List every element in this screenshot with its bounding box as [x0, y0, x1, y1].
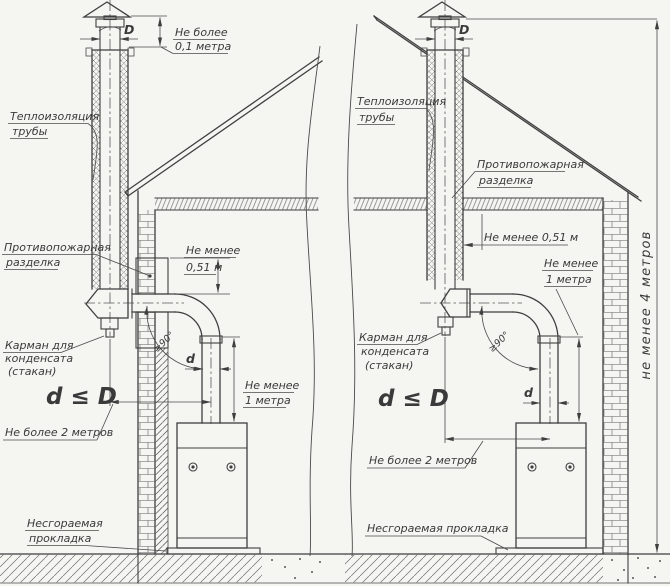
right-insulation-label-1: Теплоизоляция: [357, 95, 446, 108]
left-chimney-cap: [84, 2, 130, 17]
left-pad-label-2: прокладка: [29, 532, 92, 545]
left-cap-height-label-1: Не более: [175, 26, 228, 39]
left-condensate-cup: [101, 318, 118, 329]
right-condensate-label-1: Карман для: [359, 331, 428, 344]
left-insulation-label-1: Теплоизоляция: [10, 110, 99, 123]
right-height4m-label: не менее 4 метров: [639, 230, 654, 379]
break-lines: [306, 24, 357, 556]
right-boiler-body: [516, 423, 586, 548]
right-min1m-label-1: Не менее: [544, 257, 599, 270]
right-riser-joint: [538, 336, 560, 343]
left-condensate-label-2: конденсата: [5, 352, 73, 365]
right-ceiling-left: [354, 198, 427, 210]
right-scheme: D Теплоизоляция трубы Противопожарная ра…: [354, 0, 657, 554]
right-insulation-strip-l: [427, 50, 435, 280]
left-formula: d ≤ D: [46, 384, 117, 410]
left-boiler: [167, 423, 260, 554]
break-line-right: [348, 24, 357, 556]
left-floor-pad: [167, 548, 260, 554]
right-firecut-label-2: разделка: [478, 174, 534, 187]
left-insulation-label-2: трубы: [12, 125, 48, 138]
ground-hatch-left: [0, 555, 262, 583]
left-firecut-label-2: разделка: [5, 256, 61, 269]
left-pad-label-1: Несгораемая: [27, 517, 103, 530]
left-d-small-label: d: [186, 351, 196, 366]
right-ceiling-right: [463, 198, 603, 210]
right-wall-bricks: [603, 200, 628, 554]
right-axes: [420, 0, 550, 424]
left-firecut-label-1: Противопожарная: [4, 241, 111, 254]
right-formula: d ≤ D: [378, 386, 449, 412]
left-condensate-label-1: Карман для: [5, 339, 74, 352]
left-wall-plaster: [155, 348, 168, 554]
break-line-left: [306, 46, 320, 556]
left-dim-d-label: D: [124, 22, 134, 37]
ground: [0, 554, 670, 583]
diagram-canvas: D Не более 0,1 метра Теплоизоляция трубы…: [0, 0, 670, 586]
left-tee: [86, 289, 128, 318]
right-elbow-inner: [513, 312, 540, 339]
left-elbow-outer: [175, 294, 220, 339]
left-building: [125, 57, 322, 554]
left-cap-height-label-2: 0,1 метра: [175, 40, 231, 53]
right-insulation-strip-r: [455, 50, 463, 280]
right-elbow-outer: [513, 294, 558, 339]
left-min1m-label-2: 1 метра: [245, 394, 291, 407]
right-firecut-label-1: Противопожарная: [477, 158, 584, 171]
right-condensate-cup: [438, 317, 453, 327]
right-insulation-label-2: трубы: [359, 111, 395, 124]
right-dim-d-label: D: [459, 22, 469, 37]
left-scheme: D Не более 0,1 метра Теплоизоляция трубы…: [2, 0, 322, 554]
ground-hatch-right: [345, 555, 603, 583]
right-condensate-label-2: конденсата: [361, 345, 429, 358]
right-min051-label: Не менее 0,51 м: [484, 231, 578, 244]
chimney-installation-drawing: D Не более 0,1 метра Теплоизоляция трубы…: [0, 0, 670, 586]
right-angle-label: ≥90°: [487, 330, 512, 355]
right-min1m-label-2: 1 метра: [546, 273, 592, 286]
right-chimney: [419, 2, 560, 423]
left-elbow-inner: [175, 312, 202, 339]
right-condensate-label-3: (стакан): [365, 359, 413, 372]
left-min051-label-1: Не менее: [186, 244, 241, 257]
left-wall-bricks-upper: [138, 210, 155, 294]
right-pad-label: Несгораемая прокладка: [367, 522, 509, 535]
right-d-small-label: d: [524, 385, 534, 400]
left-max2m-label: Не более 2 метров: [5, 426, 113, 439]
right-condensate-nozzle: [442, 327, 450, 335]
left-ceiling: [155, 198, 318, 210]
right-floor-pad: [496, 548, 603, 554]
right-max2m-label: Не более 2 метров: [369, 454, 477, 467]
left-insulation-strip-r: [120, 50, 128, 289]
right-chimney-cap: [419, 2, 465, 17]
left-boiler-body: [177, 423, 247, 548]
left-min1m-label-1: Не менее: [245, 379, 300, 392]
left-condensate-label-3: (стакан): [8, 365, 56, 378]
right-boiler: [496, 423, 603, 554]
left-min051-label-2: 0,51 м: [186, 261, 222, 274]
